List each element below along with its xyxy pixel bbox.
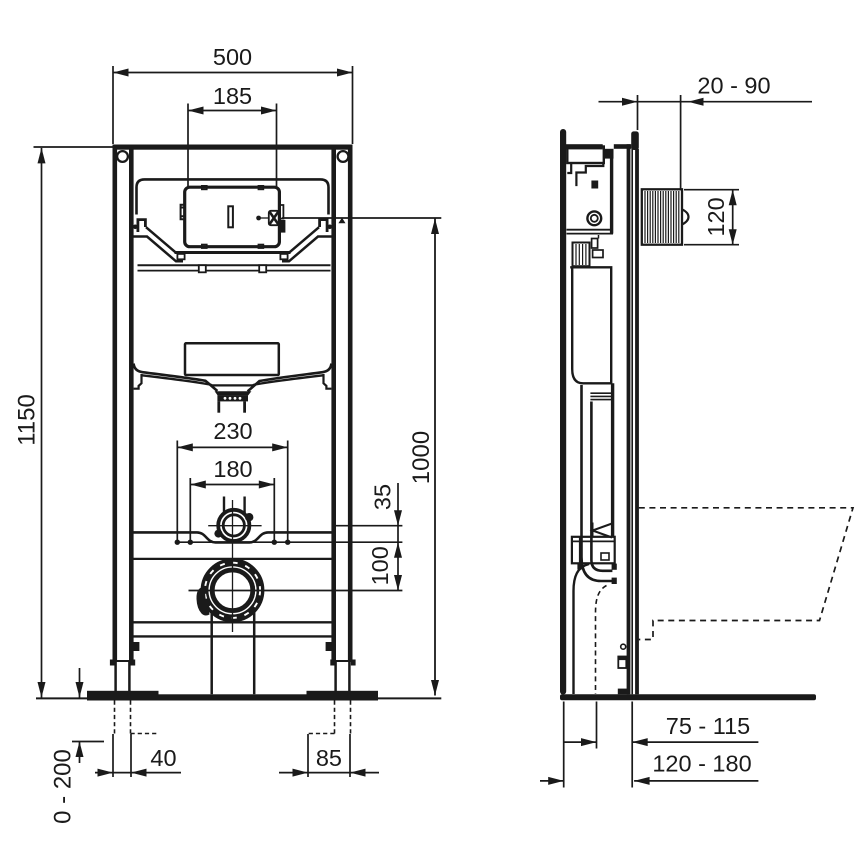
svg-text:120 - 180: 120 - 180 [652, 751, 751, 777]
svg-text:230: 230 [213, 418, 252, 444]
svg-text:75 - 115: 75 - 115 [666, 713, 751, 739]
svg-text:40: 40 [150, 745, 176, 771]
svg-text:185: 185 [213, 83, 252, 109]
svg-text:120: 120 [703, 197, 729, 236]
svg-text:180: 180 [213, 456, 252, 482]
svg-text:100: 100 [367, 546, 393, 585]
svg-text:20 - 90: 20 - 90 [697, 73, 770, 99]
svg-text:1150: 1150 [14, 394, 41, 446]
svg-text:1000: 1000 [408, 431, 435, 484]
svg-text:0 - 200: 0 - 200 [50, 749, 77, 824]
svg-text:500: 500 [213, 44, 252, 70]
svg-text:85: 85 [316, 745, 342, 771]
svg-text:35: 35 [370, 484, 396, 510]
